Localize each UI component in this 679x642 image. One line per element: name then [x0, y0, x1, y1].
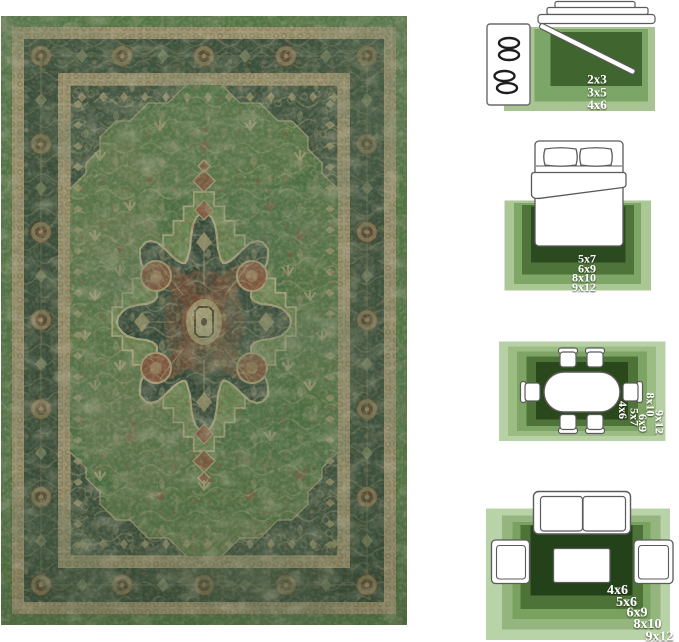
svg-text:9x12: 9x12 [572, 280, 596, 294]
svg-text:9x12: 9x12 [653, 410, 667, 434]
svg-text:6x9: 6x9 [636, 414, 650, 432]
svg-text:4x6: 4x6 [587, 97, 607, 112]
svg-text:9x12: 9x12 [646, 630, 674, 642]
